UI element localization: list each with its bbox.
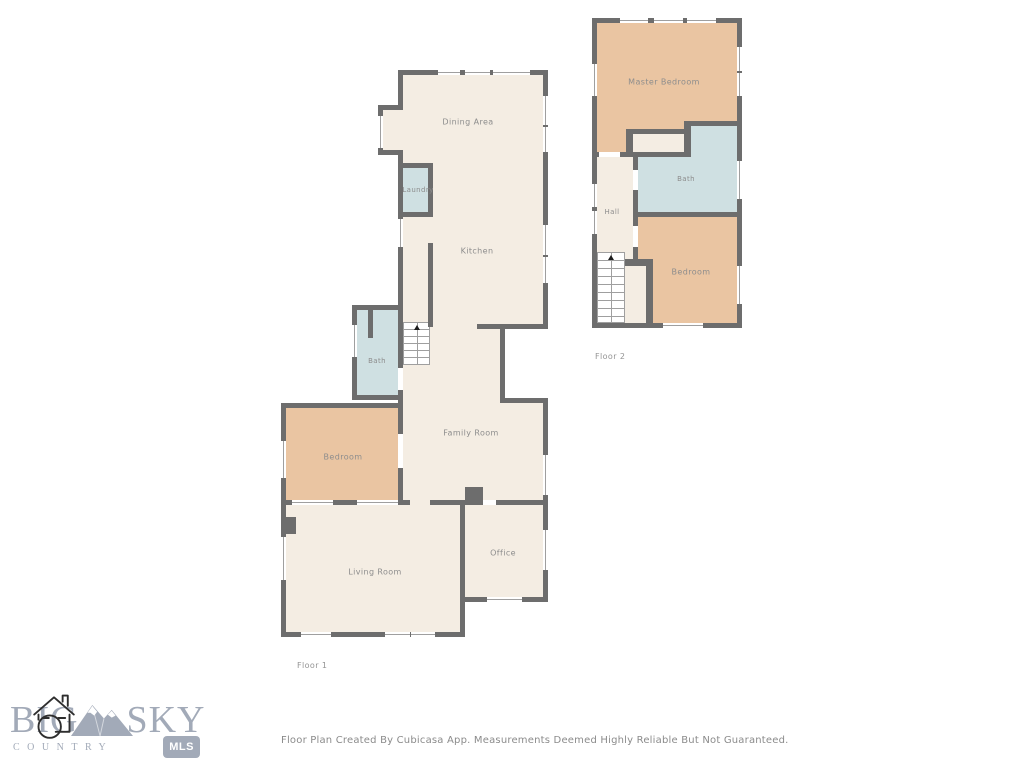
room-area bbox=[357, 310, 398, 395]
wall bbox=[352, 305, 403, 310]
door-opening bbox=[599, 152, 620, 157]
door-opening bbox=[483, 500, 496, 505]
window bbox=[737, 73, 742, 96]
house-magnifier-icon bbox=[28, 693, 80, 743]
window bbox=[487, 597, 522, 602]
window bbox=[592, 211, 597, 234]
floorplan-canvas: Dining Area Laundry Kitchen Bath Bedroom… bbox=[0, 0, 1024, 768]
window bbox=[292, 500, 333, 505]
wall bbox=[500, 329, 505, 398]
room-label-kitchen: Kitchen bbox=[461, 247, 494, 256]
wall bbox=[691, 121, 737, 126]
wall bbox=[428, 243, 433, 327]
door-opening bbox=[633, 170, 638, 190]
stairs-up-arrow-icon bbox=[414, 325, 420, 330]
room-area bbox=[625, 266, 646, 323]
window bbox=[737, 47, 742, 71]
wall bbox=[398, 468, 403, 503]
window bbox=[281, 441, 286, 478]
room-area bbox=[597, 23, 737, 129]
bigsky-mls-logo: BIG SKY COUNTRY MLS bbox=[10, 703, 210, 765]
window bbox=[737, 161, 742, 199]
window bbox=[543, 455, 548, 495]
room-label-family-room: Family Room bbox=[443, 429, 498, 438]
window bbox=[687, 18, 716, 23]
room-label-master-bedroom: Master Bedroom bbox=[628, 78, 700, 87]
window bbox=[378, 116, 383, 148]
floor-1-caption: Floor 1 bbox=[297, 661, 327, 670]
floor-2-caption: Floor 2 bbox=[595, 352, 625, 361]
wall bbox=[500, 398, 548, 403]
wall bbox=[398, 70, 403, 110]
room-label-hall: Hall bbox=[604, 208, 619, 216]
stairs-floor2 bbox=[597, 252, 625, 323]
stairs-floor1 bbox=[403, 322, 430, 365]
window bbox=[663, 323, 703, 328]
window bbox=[301, 632, 331, 637]
window bbox=[543, 96, 548, 125]
room-label-bath-floor2: Bath bbox=[677, 175, 695, 183]
room-label-office: Office bbox=[490, 549, 516, 558]
wall bbox=[646, 262, 653, 323]
wall bbox=[496, 500, 543, 505]
window bbox=[398, 219, 403, 247]
window bbox=[281, 537, 286, 580]
logo-mls-badge: MLS bbox=[163, 736, 200, 758]
wall bbox=[460, 500, 465, 637]
room-label-dining-area: Dining Area bbox=[442, 118, 493, 127]
footer-disclaimer: Floor Plan Created By Cubicasa App. Meas… bbox=[281, 735, 789, 746]
wall bbox=[281, 500, 292, 505]
wall bbox=[465, 487, 483, 505]
door-opening bbox=[633, 226, 638, 247]
door-opening bbox=[398, 368, 403, 390]
wall bbox=[477, 324, 543, 329]
room-area bbox=[638, 217, 737, 262]
window bbox=[543, 225, 548, 255]
wall bbox=[633, 217, 638, 226]
window bbox=[543, 127, 548, 152]
wall bbox=[403, 212, 433, 217]
window bbox=[737, 266, 742, 304]
window bbox=[592, 64, 597, 96]
wall bbox=[430, 500, 465, 505]
wall bbox=[283, 517, 296, 534]
logo-country-text: COUNTRY bbox=[13, 742, 113, 753]
room-area bbox=[597, 126, 628, 152]
stairs-up-arrow-icon bbox=[608, 255, 614, 260]
room-label-bedroom-floor1: Bedroom bbox=[324, 453, 363, 462]
room-area bbox=[691, 126, 737, 157]
wall bbox=[352, 395, 403, 400]
wall bbox=[633, 212, 742, 217]
room-area bbox=[638, 157, 737, 212]
room-label-bedroom-floor2: Bedroom bbox=[672, 268, 711, 277]
logo-sky-text: SKY bbox=[126, 704, 205, 737]
wall bbox=[368, 310, 373, 338]
room-label-laundry: Laundry bbox=[402, 186, 433, 194]
window bbox=[493, 70, 530, 75]
window bbox=[620, 18, 648, 23]
room-label-bath-floor1: Bath bbox=[368, 357, 386, 365]
wall bbox=[398, 500, 410, 505]
wall bbox=[281, 403, 403, 408]
window bbox=[352, 325, 357, 357]
window bbox=[465, 70, 490, 75]
window bbox=[385, 632, 410, 637]
wall bbox=[333, 500, 357, 505]
window bbox=[357, 500, 398, 505]
window bbox=[543, 257, 548, 283]
window bbox=[411, 632, 435, 637]
wall bbox=[398, 403, 403, 434]
mountain-icon bbox=[71, 703, 133, 736]
window bbox=[438, 70, 460, 75]
window bbox=[592, 184, 597, 207]
window bbox=[654, 18, 683, 23]
window bbox=[543, 530, 548, 570]
door-opening bbox=[398, 434, 403, 468]
room-area bbox=[383, 108, 403, 155]
room-label-living-room: Living Room bbox=[348, 568, 402, 577]
wall bbox=[626, 129, 691, 134]
